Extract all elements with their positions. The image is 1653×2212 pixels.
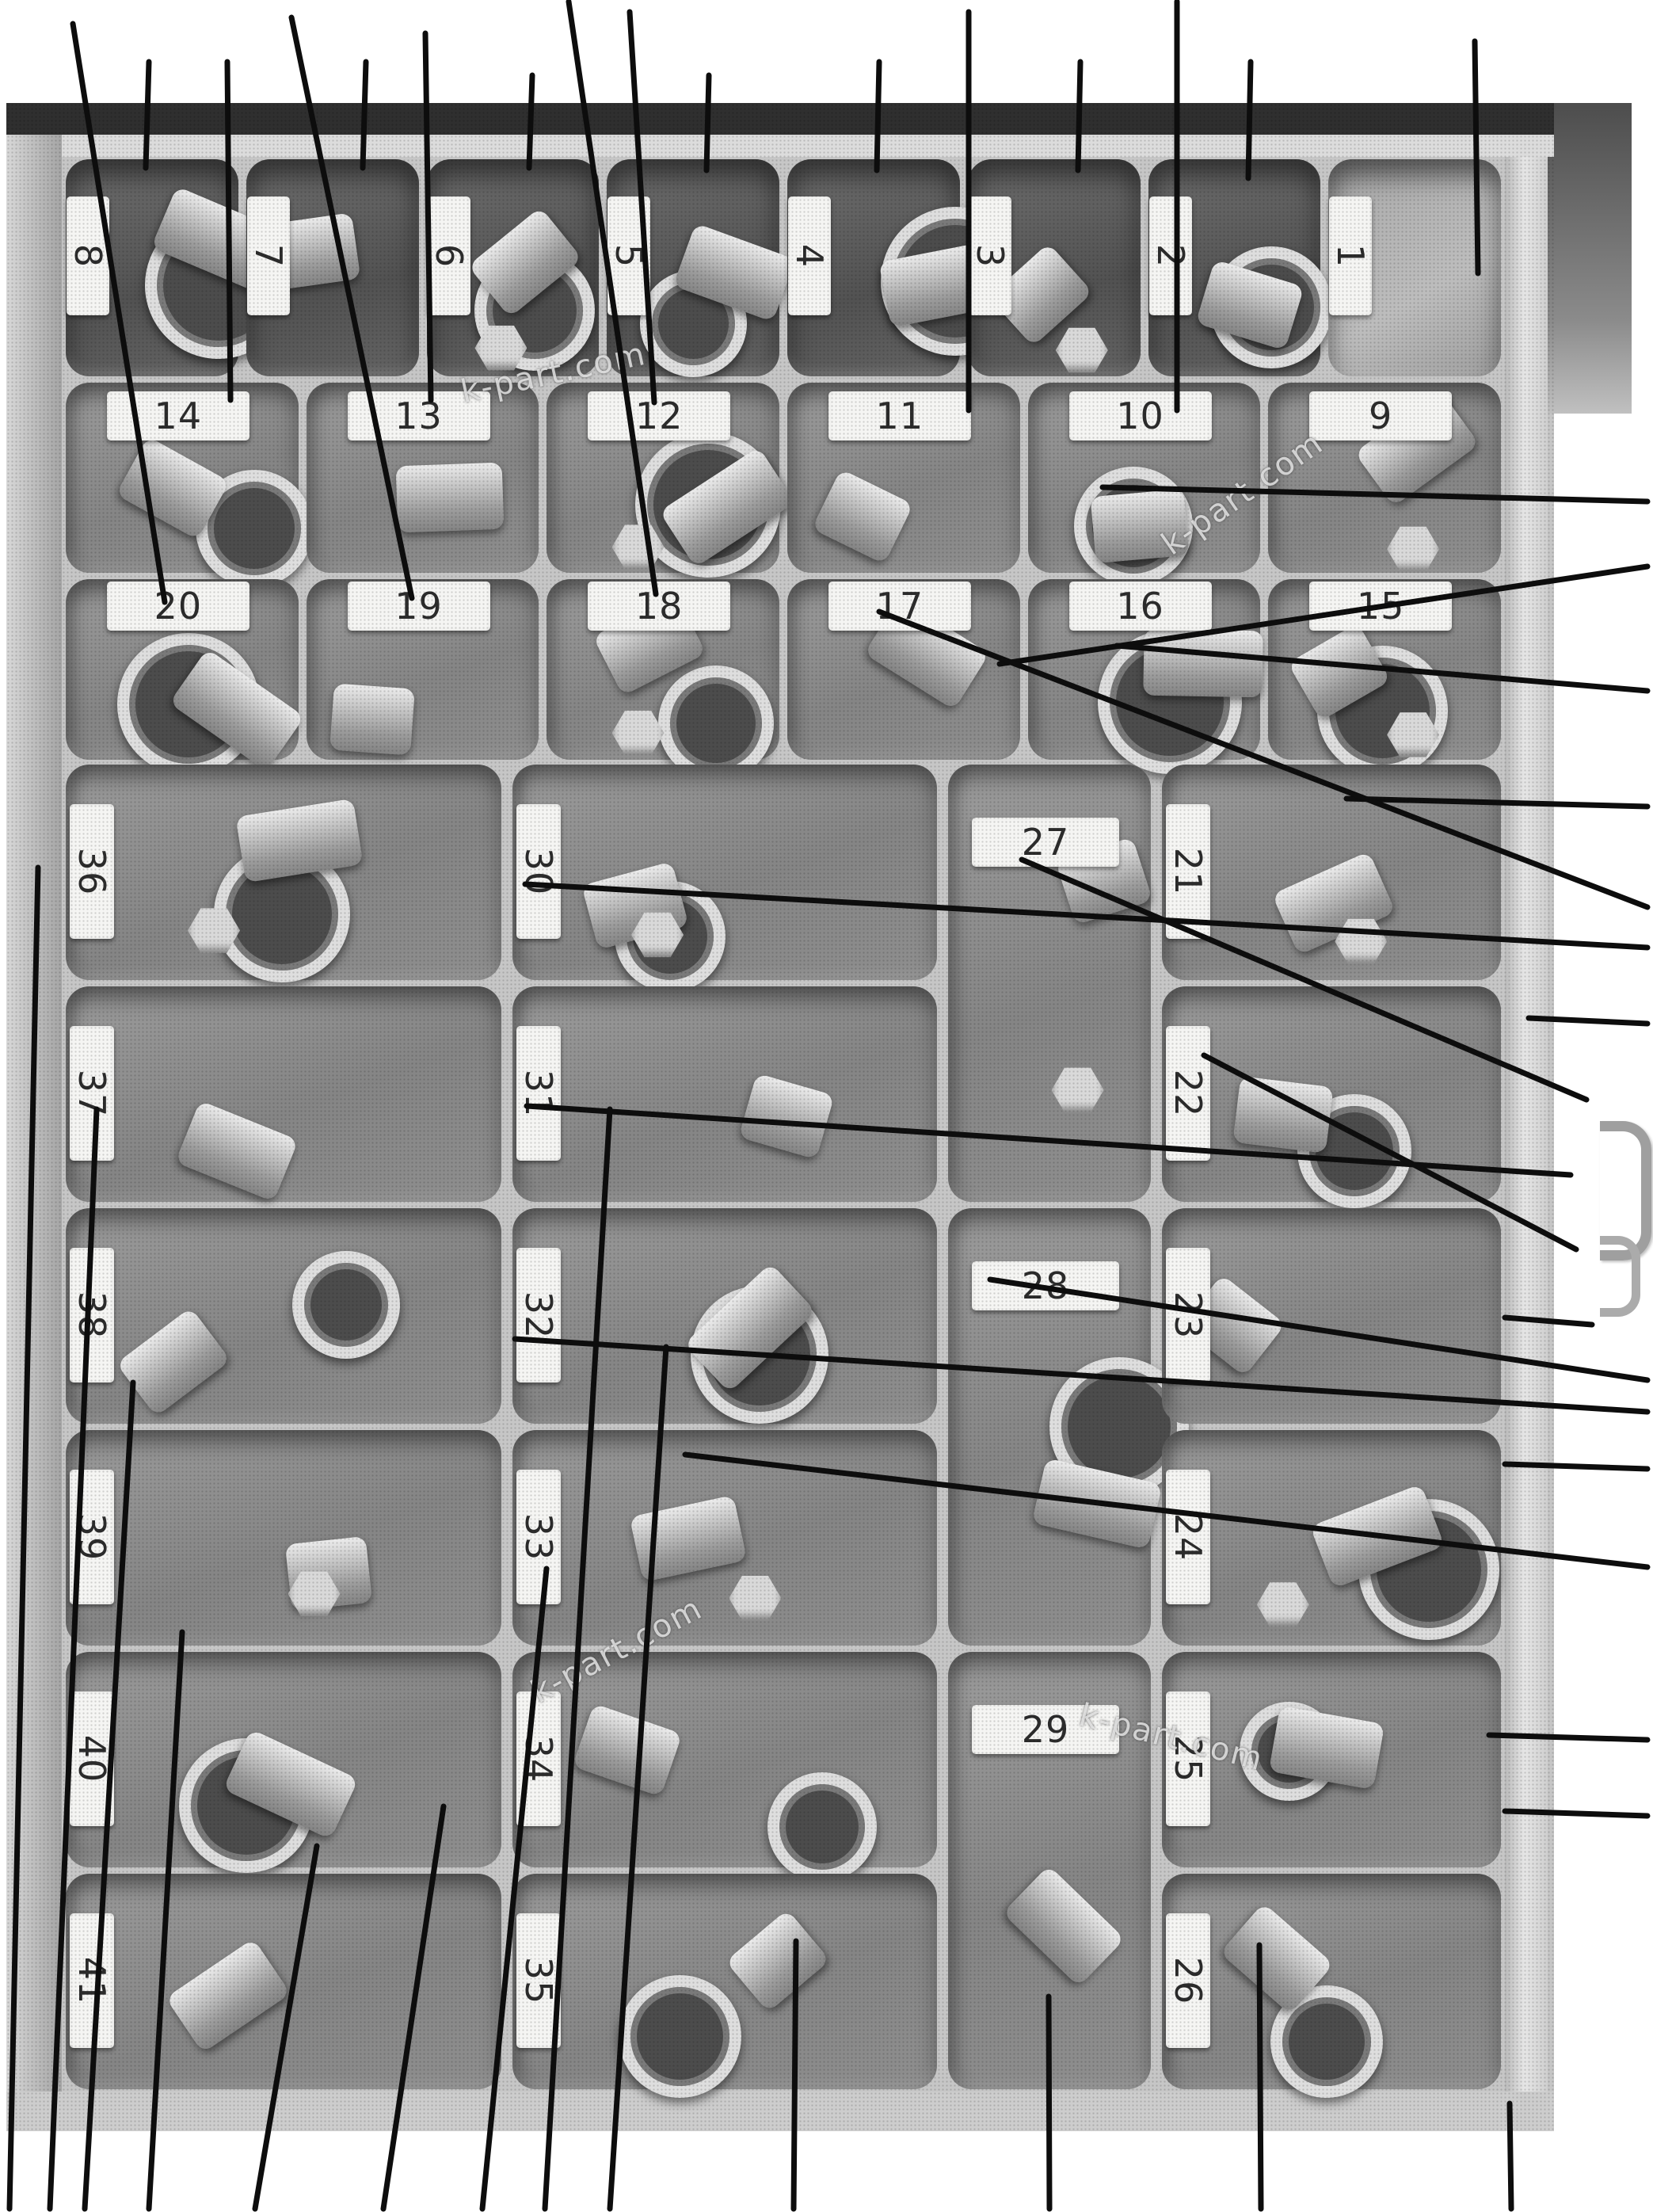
bin-40 (66, 1652, 501, 1867)
fitting-body-part (116, 1307, 231, 1417)
bin-38 (66, 1208, 501, 1424)
bin-label-tag: 28 (972, 1261, 1119, 1310)
bin-label-tag: 40 (70, 1691, 114, 1826)
bin-label-tag: 12 (588, 391, 730, 440)
bin-label: 37 (70, 1070, 113, 1118)
bin-39 (66, 1430, 501, 1646)
bin-label: 19 (394, 585, 443, 627)
bin-label-tag: 37 (70, 1026, 114, 1161)
bin-label: 2 (1149, 244, 1192, 268)
bin-36 (66, 765, 501, 980)
bin-32 (512, 1208, 937, 1424)
bin-label: 31 (517, 1070, 560, 1118)
bin-label: 32 (517, 1291, 560, 1340)
bin-33 (512, 1430, 937, 1646)
tray-right-rim (1505, 157, 1548, 2092)
fitting-body-part (726, 1909, 830, 2012)
bin-label: 7 (247, 244, 290, 268)
bin-37 (66, 986, 501, 1202)
tray-top-edge (6, 103, 1554, 135)
bin-label-tag: 21 (1166, 804, 1210, 939)
photo-top-right-shadow (1548, 103, 1632, 414)
bin-label-tag: 19 (348, 582, 490, 631)
bin-label-tag: 6 (428, 196, 470, 315)
fitting-body-part (329, 683, 415, 755)
bin-label: 29 (1022, 1708, 1070, 1751)
bin-label-tag: 34 (516, 1691, 561, 1826)
tray-left-rim (6, 135, 62, 2131)
bin-label: 28 (1022, 1264, 1070, 1307)
bin-label-tag: 16 (1069, 582, 1212, 631)
bin-label-tag: 5 (607, 196, 650, 315)
bin-label-tag: 26 (1166, 1913, 1210, 2048)
bin-24 (1162, 1430, 1501, 1646)
bin-label: 41 (70, 1957, 113, 2005)
annotated-parts-tray-figure: 8765432114131211109201918171615363738394… (0, 0, 1653, 2212)
bin-label-tag: 39 (70, 1470, 114, 1604)
bin-label-tag: 33 (516, 1470, 561, 1604)
fitting-body-part (165, 1938, 290, 2053)
fitting-body-part (1144, 629, 1263, 698)
bin-label-tag: 32 (516, 1248, 561, 1382)
bin-label-tag: 8 (67, 196, 109, 315)
fitting-body-part (738, 1074, 834, 1160)
fitting-body-part (175, 1100, 299, 1202)
bin-label-tag: 20 (107, 582, 249, 631)
bin-26 (1162, 1874, 1501, 2089)
tray-top-rim (6, 135, 1554, 157)
hex-nut-part (1052, 1066, 1104, 1114)
bin-label: 30 (517, 848, 560, 896)
bin-label: 40 (70, 1735, 113, 1783)
fitting-body-part (812, 469, 914, 564)
case-latch-icon (1600, 1236, 1640, 1317)
bin-label-tag: 38 (70, 1248, 114, 1382)
bin-label-tag: 3 (969, 196, 1011, 315)
hex-nut-part (729, 1574, 781, 1622)
bin-label: 34 (517, 1735, 560, 1783)
bin-label-tag: 35 (516, 1913, 561, 2048)
hex-nut-part (612, 709, 665, 757)
bin-label-tag: 14 (107, 391, 249, 440)
hex-nut-part (1056, 326, 1108, 374)
bin-label: 24 (1167, 1513, 1209, 1562)
bin-label-tag: 11 (828, 391, 971, 440)
fitting-body-part (1232, 1076, 1333, 1154)
fitting-ring-part (292, 1251, 400, 1359)
bin-label: 23 (1167, 1291, 1209, 1340)
bin-label: 13 (394, 395, 443, 437)
bin-label: 35 (517, 1957, 560, 2005)
bin-label-tag: 17 (828, 582, 971, 631)
fitting-body-part (630, 1495, 748, 1582)
bin-label-tag: 31 (516, 1026, 561, 1161)
hex-nut-part (1387, 525, 1439, 573)
bin-label: 4 (788, 244, 831, 268)
bin-label: 39 (70, 1513, 113, 1562)
bin-label-tag: 18 (588, 582, 730, 631)
fitting-body-part (1003, 1865, 1125, 1987)
bin-label-tag: 15 (1309, 582, 1452, 631)
bin-label: 15 (1357, 585, 1405, 627)
bin-label-tag: 1 (1329, 196, 1372, 315)
bin-label: 36 (70, 848, 113, 896)
bin-label-tag: 10 (1069, 391, 1212, 440)
bin-label: 17 (876, 585, 924, 627)
bin-label: 12 (635, 395, 684, 437)
bin-label-tag: 9 (1309, 391, 1452, 440)
bin-label-tag: 4 (788, 196, 831, 315)
fitting-body-part (572, 1703, 682, 1797)
bin-label-tag: 22 (1166, 1026, 1210, 1161)
bin-label: 33 (517, 1513, 560, 1562)
bin-label: 9 (1369, 395, 1392, 437)
hex-nut-part (1257, 1581, 1309, 1628)
bin-label-tag: 7 (247, 196, 290, 315)
bin-41 (66, 1874, 501, 2089)
bin-31 (512, 986, 937, 1202)
bin-label: 8 (67, 244, 109, 268)
bin-21 (1162, 765, 1501, 980)
fitting-ring-part (619, 1975, 741, 2098)
bin-label: 18 (635, 585, 684, 627)
bin-label: 16 (1116, 585, 1164, 627)
bin-label: 5 (607, 244, 650, 268)
bin-label: 38 (70, 1291, 113, 1340)
bin-label-tag: 24 (1166, 1470, 1210, 1604)
bin-30 (512, 765, 937, 980)
bin-label-tag: 36 (70, 804, 114, 939)
bin-35 (512, 1874, 937, 2089)
bin-label: 10 (1116, 395, 1164, 437)
bin-22 (1162, 986, 1501, 1202)
bin-label-tag: 41 (70, 1913, 114, 2048)
bin-label-tag: 27 (972, 818, 1119, 867)
bin-label: 27 (1022, 821, 1070, 864)
bin-label-tag: 30 (516, 804, 561, 939)
bin-label-tag: 23 (1166, 1248, 1210, 1382)
bin-label: 11 (876, 395, 924, 437)
bin-label: 3 (969, 244, 1011, 268)
bin-label: 26 (1167, 1957, 1209, 2005)
bin-label: 20 (154, 585, 203, 627)
bin-label: 22 (1167, 1070, 1209, 1118)
fitting-ring-part (767, 1772, 877, 1882)
bin-label-tag: 2 (1149, 196, 1192, 315)
bin-label: 21 (1167, 848, 1209, 896)
bin-label: 1 (1329, 244, 1372, 268)
bin-label: 6 (428, 244, 470, 268)
bin-label: 14 (154, 395, 203, 437)
bin-23 (1162, 1208, 1501, 1424)
fitting-body-part (235, 799, 363, 883)
fitting-body-part (396, 463, 505, 533)
